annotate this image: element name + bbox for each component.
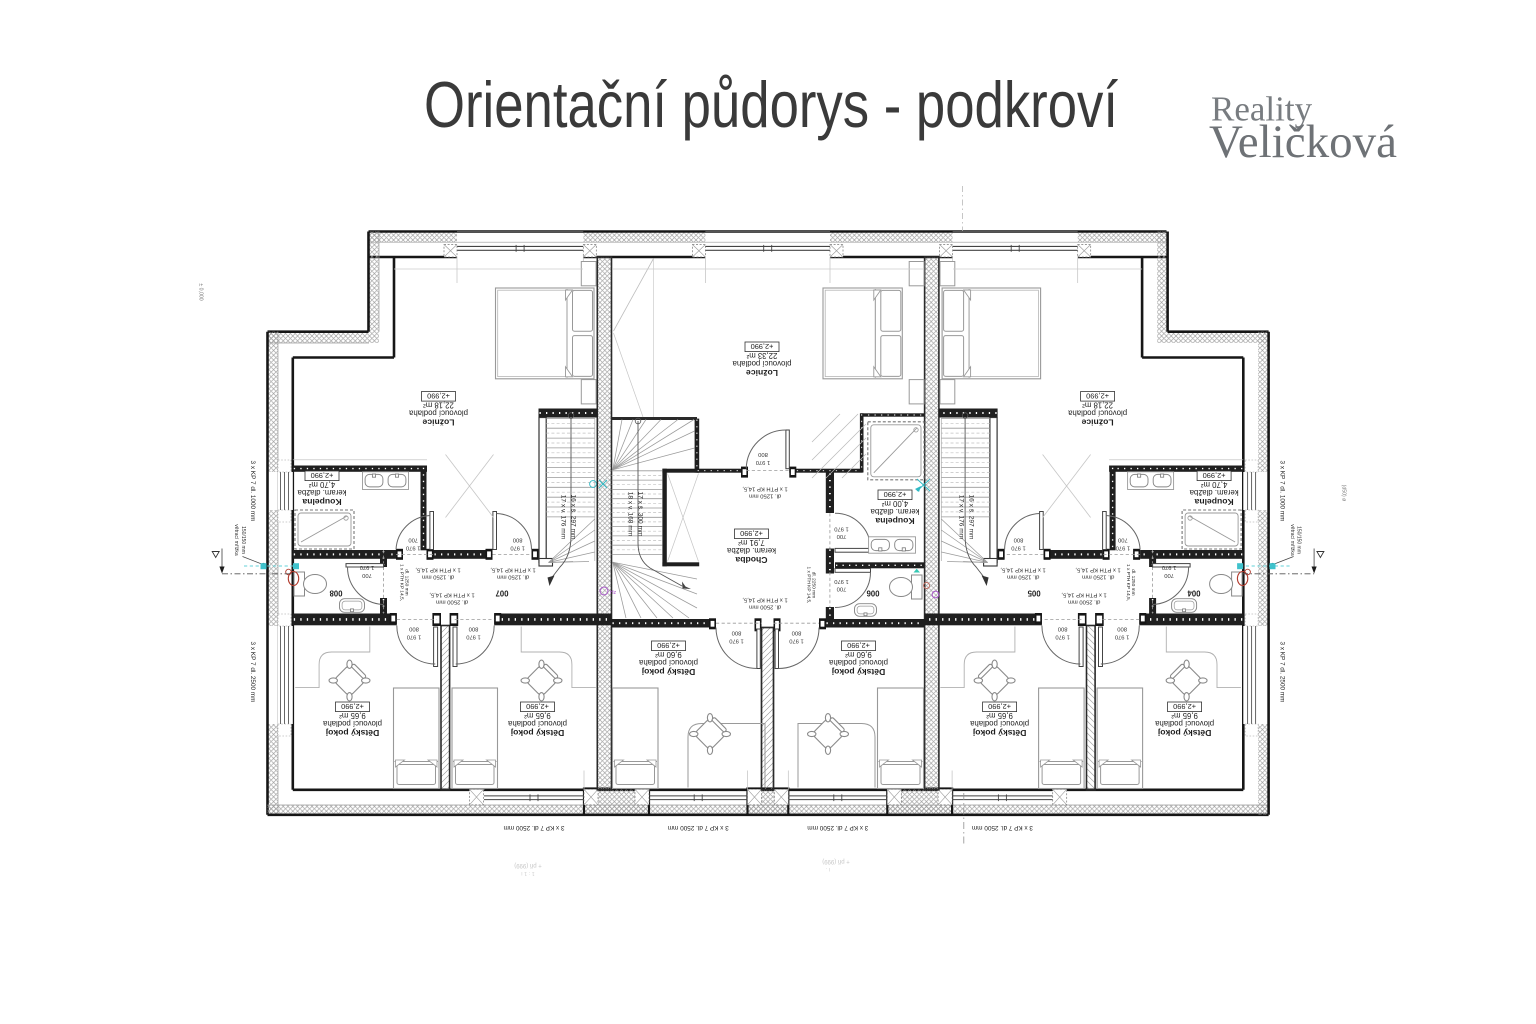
svg-text:dl. 2250 mm: dl. 2250 mm [811, 572, 817, 598]
svg-text:keram. dlažba: keram. dlažba [726, 546, 776, 555]
svg-text:(d50) ø: (d50) ø [1341, 485, 1347, 503]
svg-text:+2,990: +2,990 [1203, 471, 1226, 480]
svg-text:1 970: 1 970 [1011, 544, 1026, 550]
svg-text:+2,990: +2,990 [427, 392, 450, 401]
svg-text:dl. 1250 mm: dl. 1250 mm [1007, 573, 1040, 579]
svg-text:dl. 2500 mm: dl. 2500 mm [749, 603, 782, 609]
svg-text:800: 800 [792, 630, 802, 636]
svg-text:700: 700 [362, 572, 372, 578]
svg-text:800: 800 [1058, 626, 1068, 632]
svg-text:+ při (999): + při (999) [514, 862, 542, 868]
svg-text:3 x KP 7 dl. 1000 mm: 3 x KP 7 dl. 1000 mm [1278, 461, 1285, 522]
svg-text:007: 007 [495, 589, 508, 598]
svg-text:+2,990: +2,990 [847, 641, 870, 650]
svg-text:keram. dlažba: keram. dlažba [297, 488, 347, 497]
svg-text:3 x KP 7 dl. 2500 mm: 3 x KP 7 dl. 2500 mm [807, 824, 868, 831]
svg-text:008: 008 [329, 589, 343, 598]
svg-text:Koupelna: Koupelna [875, 516, 914, 526]
svg-text:plovoucí podlaha: plovoucí podlaha [969, 719, 1029, 728]
svg-text:1 970: 1 970 [407, 633, 422, 639]
svg-text:1 x PTH KP 14,5,: 1 x PTH KP 14,5, [806, 567, 812, 604]
svg-text:1 970: 1 970 [406, 544, 421, 550]
svg-text:Dětský pokoj: Dětský pokoj [642, 667, 696, 677]
svg-text:keram. dlažba: keram. dlažba [870, 507, 920, 516]
svg-text:± 0,000: ± 0,000 [198, 283, 204, 300]
svg-text:3 x KP 7 dl. 2500 mm: 3 x KP 7 dl. 2500 mm [668, 824, 729, 831]
svg-text:3 x KP 7 dl. 2500 mm: 3 x KP 7 dl. 2500 mm [972, 824, 1033, 831]
svg-text:22,33 m²: 22,33 m² [746, 351, 777, 360]
svg-text:dl. 1250 mm: dl. 1250 mm [1082, 573, 1115, 579]
svg-text:005: 005 [1027, 589, 1041, 598]
svg-text:22,18 m²: 22,18 m² [1082, 401, 1113, 410]
svg-text:Ložnice: Ložnice [746, 368, 778, 378]
svg-text:3 x KP 7 dl. 2500 mm: 3 x KP 7 dl. 2500 mm [504, 824, 565, 831]
svg-text:Veličková: Veličková [1209, 116, 1397, 168]
svg-text:Dětský pokoj: Dětský pokoj [326, 728, 380, 738]
svg-text:+2,990: +2,990 [341, 702, 364, 711]
svg-text:4,70 m²: 4,70 m² [308, 480, 335, 489]
svg-text:1 970: 1 970 [510, 544, 525, 550]
svg-text:plovoucí podlaha: plovoucí podlaha [507, 719, 567, 728]
svg-text:plovoucí podlaha: plovoucí podlaha [828, 658, 888, 667]
svg-text:plovoucí podlaha: plovoucí podlaha [1154, 719, 1214, 728]
svg-text:Dětský pokoj: Dětský pokoj [832, 667, 886, 677]
svg-text:Koupelna: Koupelna [302, 497, 341, 507]
svg-text:plovoucí podlaha: plovoucí podlaha [732, 359, 792, 368]
svg-text:+2,990: +2,990 [1086, 392, 1109, 401]
svg-text:1 x PTH KP 14,5,: 1 x PTH KP 14,5, [1125, 564, 1131, 601]
svg-text:dl. 1250 mm: dl. 1250 mm [497, 573, 530, 579]
svg-text:9,60 m²: 9,60 m² [845, 650, 872, 659]
svg-text:1 x PTH KP 14,5,: 1 x PTH KP 14,5, [415, 566, 461, 572]
svg-text:700: 700 [837, 533, 847, 539]
svg-text:1 970: 1 970 [1162, 564, 1177, 570]
svg-text:800: 800 [1117, 626, 1127, 632]
svg-text:dl. 1250 mm: dl. 1250 mm [1130, 569, 1136, 595]
svg-text:1 x PTH KP 14,5,: 1 x PTH KP 14,5, [1000, 566, 1046, 572]
svg-text:1 x PTH KP 14,5,: 1 x PTH KP 14,5, [1061, 592, 1107, 598]
svg-text:9,65 m²: 9,65 m² [986, 711, 1013, 720]
svg-text:Orientační půdorys - podkroví: Orientační půdorys - podkroví [424, 68, 1118, 141]
svg-text:150/150 mm: 150/150 mm [1295, 526, 1301, 554]
svg-text:dl. 2500 mm: dl. 2500 mm [436, 599, 469, 605]
svg-text:Koupelna: Koupelna [1194, 497, 1233, 507]
svg-text:keram. dlažba: keram. dlažba [1189, 488, 1239, 497]
svg-text:1 970: 1 970 [1116, 544, 1131, 550]
svg-text:800: 800 [513, 537, 523, 543]
svg-text:větrací mřížka: větrací mřížka [233, 524, 239, 556]
svg-text:9,65 m²: 9,65 m² [1171, 711, 1198, 720]
svg-text:1 970: 1 970 [789, 637, 804, 643]
svg-text:plovoucí podlaha: plovoucí podlaha [408, 409, 468, 418]
svg-text:1 970: 1 970 [360, 564, 375, 570]
svg-text:+2,990: +2,990 [988, 702, 1011, 711]
svg-text:3 x KP 7 dl. 2500 mm: 3 x KP 7 dl. 2500 mm [249, 642, 256, 703]
svg-text:800: 800 [758, 451, 768, 457]
svg-text:800: 800 [409, 626, 419, 632]
svg-text:1 x PTH KP 14,5,: 1 x PTH KP 14,5, [742, 596, 788, 602]
svg-text:800: 800 [732, 630, 742, 636]
svg-text:22,18 m²: 22,18 m² [423, 401, 454, 410]
svg-text:1 x PTH KP 14,5,: 1 x PTH KP 14,5, [742, 486, 788, 492]
svg-text:150/150 mm: 150/150 mm [240, 526, 246, 554]
svg-text:+2,990: +2,990 [740, 529, 763, 538]
svg-text:+2,990: +2,990 [751, 342, 774, 351]
svg-text:1 970: 1 970 [466, 633, 481, 639]
svg-text:dl. 1250 mm: dl. 1250 mm [422, 573, 455, 579]
svg-text:700: 700 [837, 586, 847, 592]
svg-text:plovoucí podlaha: plovoucí podlaha [322, 719, 382, 728]
svg-text:dl. 2500 mm: dl. 2500 mm [1068, 599, 1101, 605]
svg-text:1 : 1 i: 1 : 1 i [521, 870, 534, 876]
svg-text:Dětský pokoj: Dětský pokoj [1158, 728, 1212, 738]
svg-text:1 x PTH KP 14,5,: 1 x PTH KP 14,5, [490, 566, 536, 572]
svg-text:i .: i . [825, 866, 830, 872]
svg-text:plovoucí podlaha: plovoucí podlaha [1067, 409, 1127, 418]
svg-text:+2,990: +2,990 [526, 702, 549, 711]
svg-text:9,65 m²: 9,65 m² [524, 711, 551, 720]
svg-text:plovoucí podlaha: plovoucí podlaha [638, 658, 698, 667]
svg-text:3 x KP 7 dl. 2500 mm: 3 x KP 7 dl. 2500 mm [1278, 642, 1285, 703]
svg-text:1 970: 1 970 [756, 459, 771, 465]
svg-text:1 x PTH KP 14,5,: 1 x PTH KP 14,5, [1075, 566, 1121, 572]
svg-text:18 x v. 168 mm: 18 x v. 168 mm [627, 492, 634, 537]
svg-text:800: 800 [469, 626, 479, 632]
svg-text:1 x PTH KP 14,5,: 1 x PTH KP 14,5, [429, 592, 475, 598]
svg-text:1 970: 1 970 [729, 637, 744, 643]
svg-text:dl. 1250 mm: dl. 1250 mm [749, 493, 782, 499]
svg-text:1 970: 1 970 [1115, 633, 1130, 639]
svg-text:9,60 m²: 9,60 m² [655, 650, 682, 659]
svg-text:004: 004 [1187, 589, 1201, 598]
svg-text:4,00 m²: 4,00 m² [881, 499, 908, 508]
svg-text:1 970: 1 970 [1055, 633, 1070, 639]
svg-text:Ložnice: Ložnice [1081, 417, 1113, 427]
svg-text:3 x KP 7 dl. 1000 mm: 3 x KP 7 dl. 1000 mm [249, 461, 256, 522]
svg-text:9,65 m²: 9,65 m² [339, 711, 366, 720]
svg-text:800: 800 [1014, 537, 1024, 543]
svg-text:1 970: 1 970 [834, 525, 849, 531]
svg-text:17 x v. 176 mm: 17 x v. 176 mm [958, 495, 965, 540]
svg-text:700: 700 [1164, 572, 1174, 578]
svg-text:16 x š. 297 mm: 16 x š. 297 mm [968, 494, 975, 540]
svg-text:Hz: Hz [610, 590, 617, 596]
svg-text:+2,990: +2,990 [884, 490, 907, 499]
svg-text:dl. 1250 mm: dl. 1250 mm [404, 569, 410, 595]
svg-text:Chodba: Chodba [735, 555, 767, 565]
svg-text:1 x PTH KP 14,5,: 1 x PTH KP 14,5, [399, 564, 405, 601]
svg-text:+ při (999): + při (999) [822, 858, 850, 864]
svg-text:+2,990: +2,990 [311, 471, 334, 480]
svg-text:17 x š. 300 mm: 17 x š. 300 mm [637, 491, 644, 537]
svg-text:4,70 m²: 4,70 m² [1200, 480, 1227, 489]
svg-text:Dětský pokoj: Dětský pokoj [973, 728, 1027, 738]
svg-text:006: 006 [866, 589, 880, 598]
svg-text:+2,990: +2,990 [1173, 702, 1196, 711]
svg-text:1 970: 1 970 [834, 578, 849, 584]
svg-text:7,91 m²: 7,91 m² [738, 538, 765, 547]
svg-text:větrací mřížka: větrací mřížka [1289, 524, 1295, 556]
svg-text:Ložnice: Ložnice [422, 417, 454, 427]
svg-text:Dětský pokoj: Dětský pokoj [511, 728, 565, 738]
svg-text:17 x v. 176 mm: 17 x v. 176 mm [560, 495, 567, 540]
svg-text:700: 700 [1118, 537, 1128, 543]
svg-text:700: 700 [408, 537, 418, 543]
svg-text:+2,990: +2,990 [657, 641, 680, 650]
svg-text:16 x š. 297 mm: 16 x š. 297 mm [570, 494, 577, 540]
